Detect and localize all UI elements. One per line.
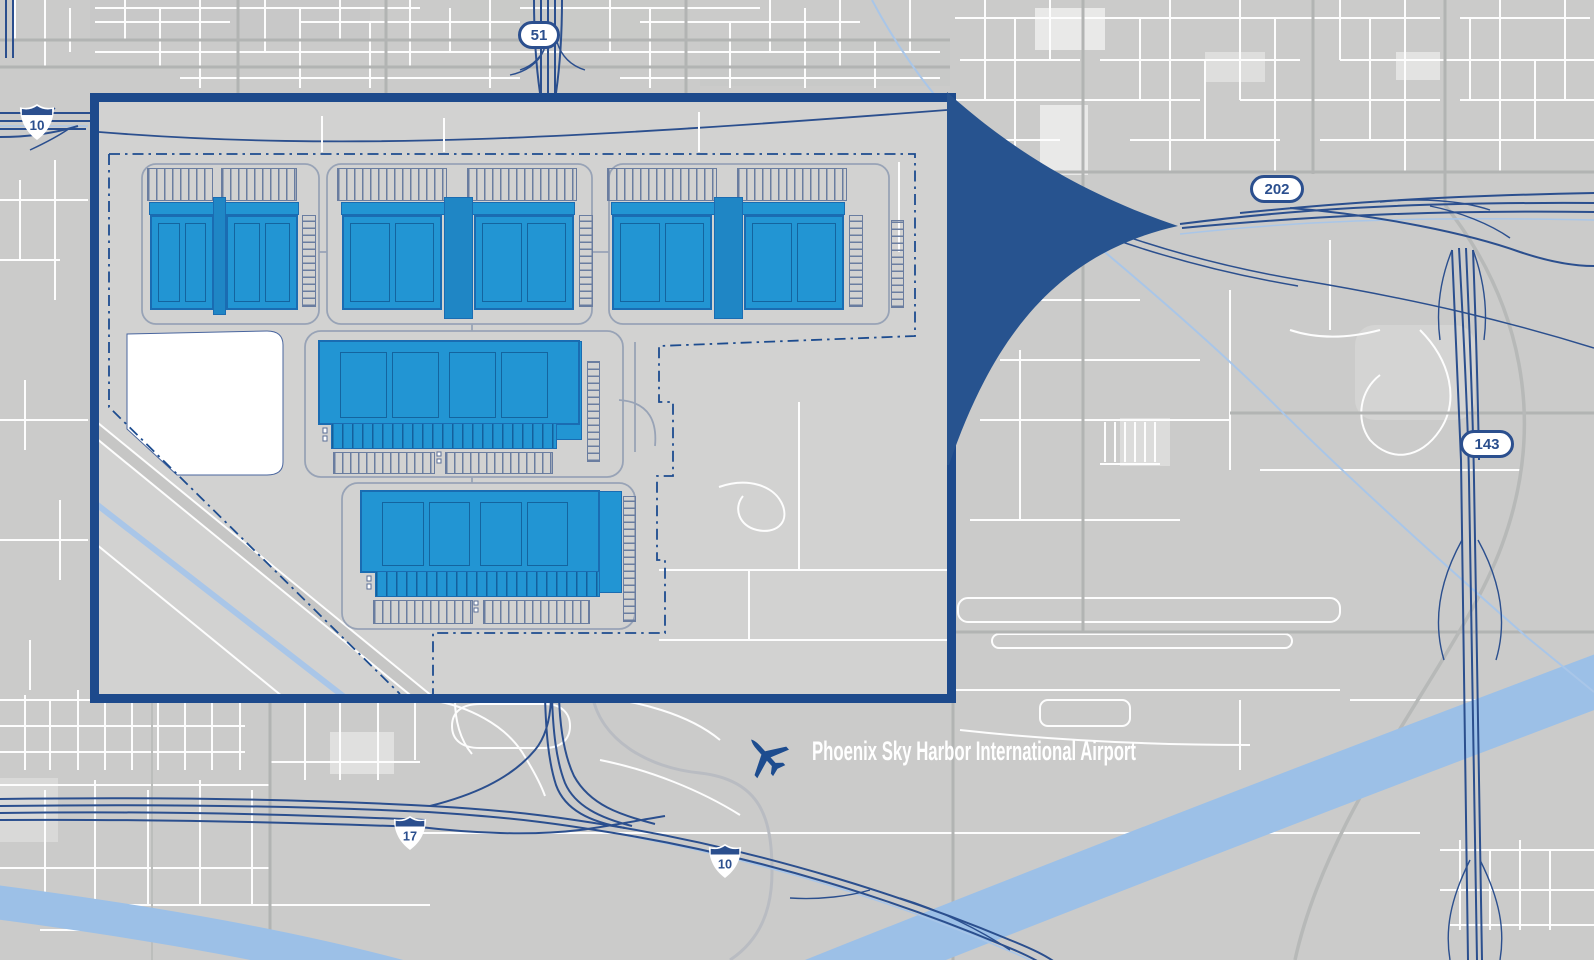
route-shield-i17: 17 [393, 815, 427, 851]
dock-bay [375, 571, 600, 597]
route-number: 10 [718, 857, 732, 872]
site-plan [99, 102, 947, 694]
trailer-parking-column [623, 496, 636, 622]
route-number: 51 [531, 27, 548, 44]
interstate-shield-icon: 10 [19, 103, 55, 141]
route-shield-202: 202 [1250, 175, 1304, 203]
building [150, 215, 214, 310]
route-number: 202 [1264, 181, 1289, 198]
route-shield-i10-south: 10 [708, 843, 742, 879]
trailer-parking-column [579, 215, 593, 307]
building-connector [714, 197, 743, 319]
trailer-parking [737, 168, 847, 201]
route-shield-143: 143 [1460, 430, 1514, 458]
runway-outline [992, 634, 1292, 648]
runway-outline [958, 598, 1340, 622]
building [612, 215, 712, 310]
car-parking [333, 452, 435, 474]
trailer-parking [337, 168, 447, 201]
trailer-parking [147, 168, 213, 201]
canal [99, 500, 361, 694]
trailer-parking-column [587, 361, 600, 462]
building [342, 215, 442, 310]
route-number: 17 [403, 829, 417, 844]
airport-label: Phoenix Sky Harbor International Airport [812, 737, 1136, 765]
building [474, 215, 574, 310]
trailer-parking-column [849, 215, 863, 307]
vacant-parcel [127, 331, 283, 475]
trailer-parking [607, 168, 717, 201]
route-shield-i10-west: 10 [19, 103, 55, 141]
trailer-parking [221, 168, 297, 201]
interstate-shield-icon: 10 [708, 843, 742, 879]
car-parking [445, 452, 553, 474]
trailer-parking [467, 168, 577, 201]
trailer-parking-column [891, 220, 904, 308]
building [360, 490, 600, 573]
callout-pointer [947, 92, 1178, 465]
building-connector [213, 197, 226, 315]
map-canvas: 51 10 202 143 17 10 Phoenix Sky Harbor I… [0, 0, 1594, 960]
dock-bay [331, 423, 557, 449]
rail-line [99, 110, 947, 141]
car-parking [373, 600, 473, 624]
building [226, 215, 298, 310]
airplane-icon [735, 725, 795, 785]
car-parking [483, 600, 590, 624]
interstate-shield-icon: 17 [393, 815, 427, 851]
trailer-parking-column [302, 215, 316, 307]
building [744, 215, 844, 310]
route-number: 143 [1474, 436, 1499, 453]
route-shield-51: 51 [518, 21, 560, 49]
building-wing [598, 491, 622, 593]
terminal-outline [1040, 700, 1130, 726]
building [318, 340, 580, 425]
site-plan-inset [90, 93, 956, 703]
route-number: 10 [29, 118, 44, 133]
building-connector [444, 197, 473, 319]
